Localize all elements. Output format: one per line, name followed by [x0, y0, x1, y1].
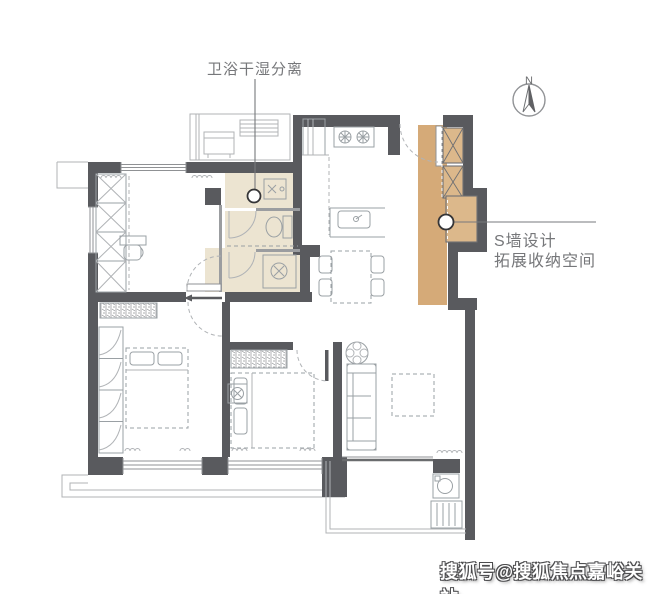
sohu-watermark: 搜狐号@搜狐焦点嘉峪关站	[440, 558, 660, 594]
dining-table-icon	[331, 251, 371, 303]
bathroom-callout-label: 卫浴干湿分离	[207, 58, 303, 79]
wardrobe-icon	[231, 350, 287, 368]
kitchen	[302, 119, 385, 237]
bedroom-left-door	[184, 295, 222, 337]
compass-north-label: N	[525, 75, 533, 87]
s-wall-callout-label: S墙设计 拓展收纳空间	[494, 232, 596, 272]
curtain-icon	[101, 176, 212, 178]
washing-machine-icon	[433, 474, 459, 498]
wardrobe-icon	[96, 174, 129, 292]
bed-icon	[126, 348, 188, 428]
balcony-cabinet-icon	[431, 501, 462, 528]
sink-icon	[330, 208, 385, 237]
bedroom-middle	[228, 350, 329, 451]
desk-chair-icon	[120, 236, 146, 260]
sofa-icon	[347, 364, 376, 450]
dining-chair-icon	[319, 256, 384, 296]
floor-plan-drawing: N	[0, 0, 660, 594]
plant-icon	[346, 342, 368, 364]
wardrobe-icon	[100, 303, 157, 318]
bedroom-middle-door	[297, 350, 329, 381]
dining-area	[319, 251, 384, 303]
floor-plan-page: N 卫浴干湿分离 S墙设计 拓展收纳空间 搜狐号@搜狐焦点嘉峪关站	[0, 0, 660, 594]
equipment-platform	[190, 114, 290, 160]
coffee-table-icon	[392, 374, 434, 416]
bedroom-left	[99, 303, 190, 453]
curtain-icon	[232, 449, 315, 451]
living-room	[346, 342, 462, 453]
s-wall-callout-line2: 拓展收纳空间	[494, 252, 596, 272]
stove-icon	[334, 127, 374, 147]
storage-cabinet-icon	[442, 128, 463, 198]
study-room	[96, 174, 221, 292]
bedroom-left-window	[123, 458, 202, 474]
balcony-slider	[342, 457, 433, 460]
hinged-wardrobe-icon	[99, 327, 123, 453]
bedroom-mid-window	[228, 458, 322, 474]
study-top-window	[121, 162, 186, 173]
curtain-icon	[437, 451, 462, 454]
compass-icon: N	[513, 75, 545, 116]
curtain-icon	[125, 449, 190, 451]
s-wall-callout-line1: S墙设计	[494, 232, 596, 252]
